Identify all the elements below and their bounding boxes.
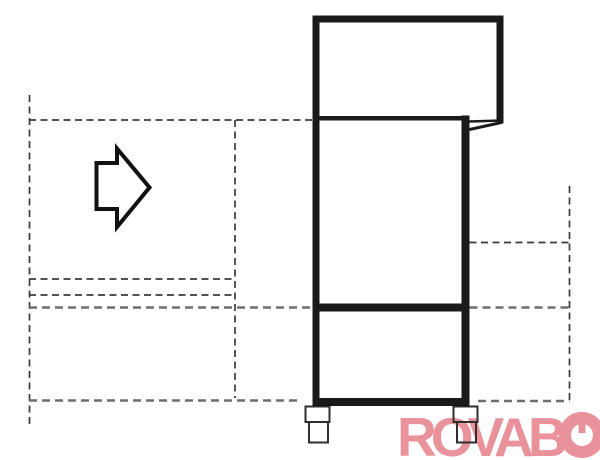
left-foot-upper — [306, 407, 330, 423]
diagram-canvas: ROVAB — [0, 0, 600, 460]
machine-feet — [306, 407, 478, 443]
dashed-guide-lines — [29, 95, 570, 427]
body-bottom-edge — [313, 398, 470, 406]
top-box-bottom-edge — [313, 116, 465, 121]
arrow-right-icon — [97, 149, 150, 228]
corner-flap-diagonal-line — [470, 123, 502, 130]
corner-flap-upper-line — [470, 121, 502, 122]
machine-outline — [313, 16, 504, 407]
top-box-top-edge — [313, 16, 504, 23]
right-foot-upper — [454, 407, 478, 423]
body-middle-divider — [313, 304, 470, 312]
body-right-edge — [462, 116, 470, 407]
left-foot-lower — [309, 422, 328, 443]
body-left-edge — [313, 16, 320, 407]
right-foot-lower — [457, 422, 476, 443]
machine-side-view-drawing — [0, 0, 600, 460]
top-box-right-edge — [497, 16, 504, 124]
